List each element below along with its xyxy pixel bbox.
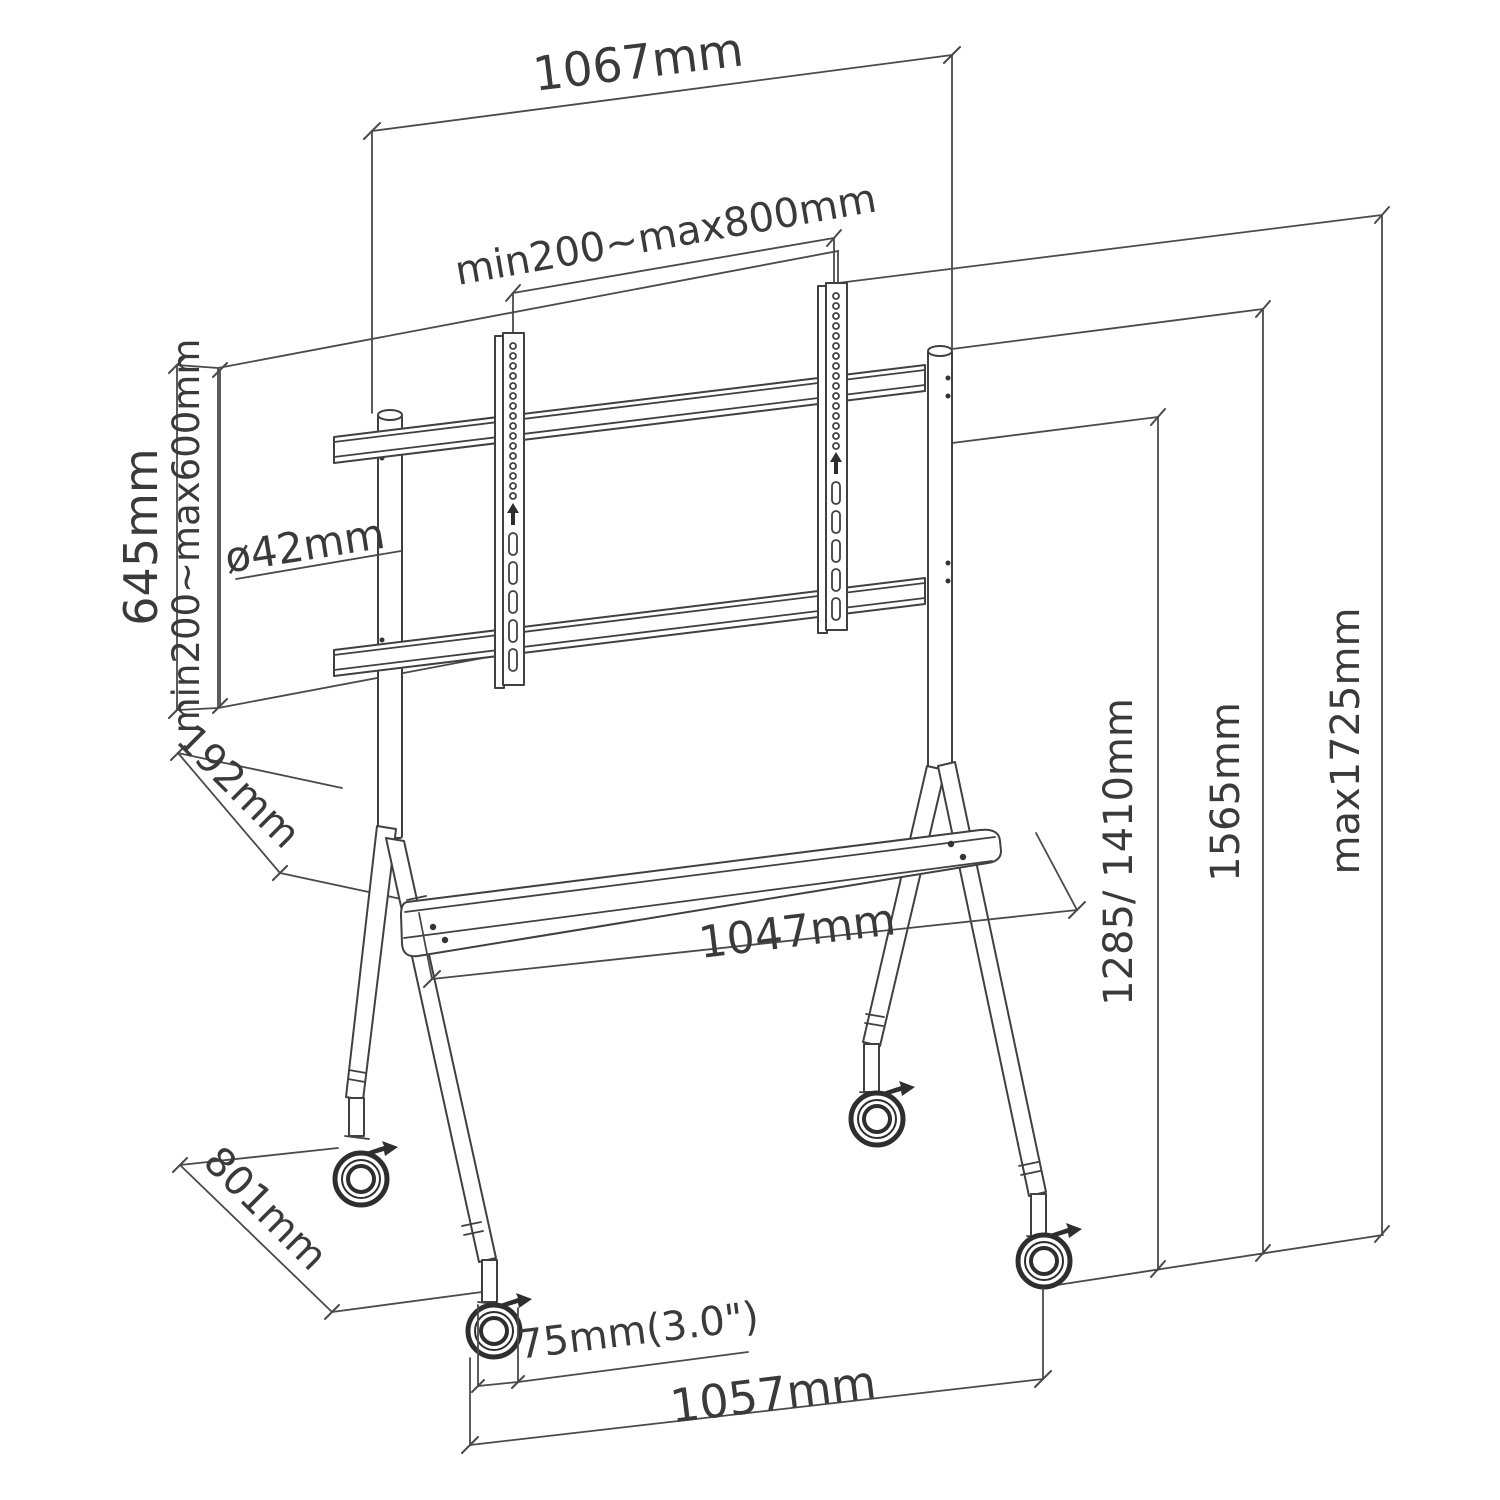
label-vesa-height: min200~max600mm xyxy=(165,339,208,734)
label-shelf-depth: 192mm xyxy=(167,716,309,858)
brake-lever-icon xyxy=(500,1293,532,1308)
caster-front-right xyxy=(851,1044,915,1145)
label-frame-height: 1565mm xyxy=(1203,702,1249,882)
tv-stand-dimension-drawing: 1067mm min200~max800mm 645mm min200~max6… xyxy=(0,0,1500,1500)
caster-rear-right xyxy=(1018,1194,1082,1287)
label-bracket-height: 645mm xyxy=(114,448,168,625)
brake-lever-icon xyxy=(1050,1223,1082,1238)
right-column xyxy=(928,346,952,772)
label-base-depth: 801mm xyxy=(194,1138,336,1280)
dimension-labels: 1067mm min200~max800mm 645mm min200~max6… xyxy=(114,22,1369,1433)
brake-lever-icon xyxy=(883,1081,915,1096)
technical-drawing-page: 1067mm min200~max800mm 645mm min200~max6… xyxy=(0,0,1500,1500)
stand-structure xyxy=(334,283,1082,1357)
label-pole-diameter: ø42mm xyxy=(221,509,388,583)
label-caster-size: 75mm(3.0") xyxy=(515,1294,761,1369)
caster-front-left xyxy=(335,1098,398,1205)
rear-right-leg xyxy=(938,762,1046,1196)
label-max-height: max1725mm xyxy=(1323,608,1369,875)
brake-lever-icon xyxy=(366,1141,398,1156)
label-top-width: 1067mm xyxy=(530,22,746,102)
front-left-leg xyxy=(346,826,396,1100)
right-vesa-bracket xyxy=(818,283,847,633)
label-screen-center-heights: 1285/ 1410mm xyxy=(1096,698,1142,1006)
left-column xyxy=(378,410,402,838)
left-vesa-bracket xyxy=(495,333,524,688)
floor-reference-line xyxy=(1044,1235,1383,1287)
label-vesa-width: min200~max800mm xyxy=(452,175,880,294)
label-base-width: 1057mm xyxy=(667,1355,879,1434)
